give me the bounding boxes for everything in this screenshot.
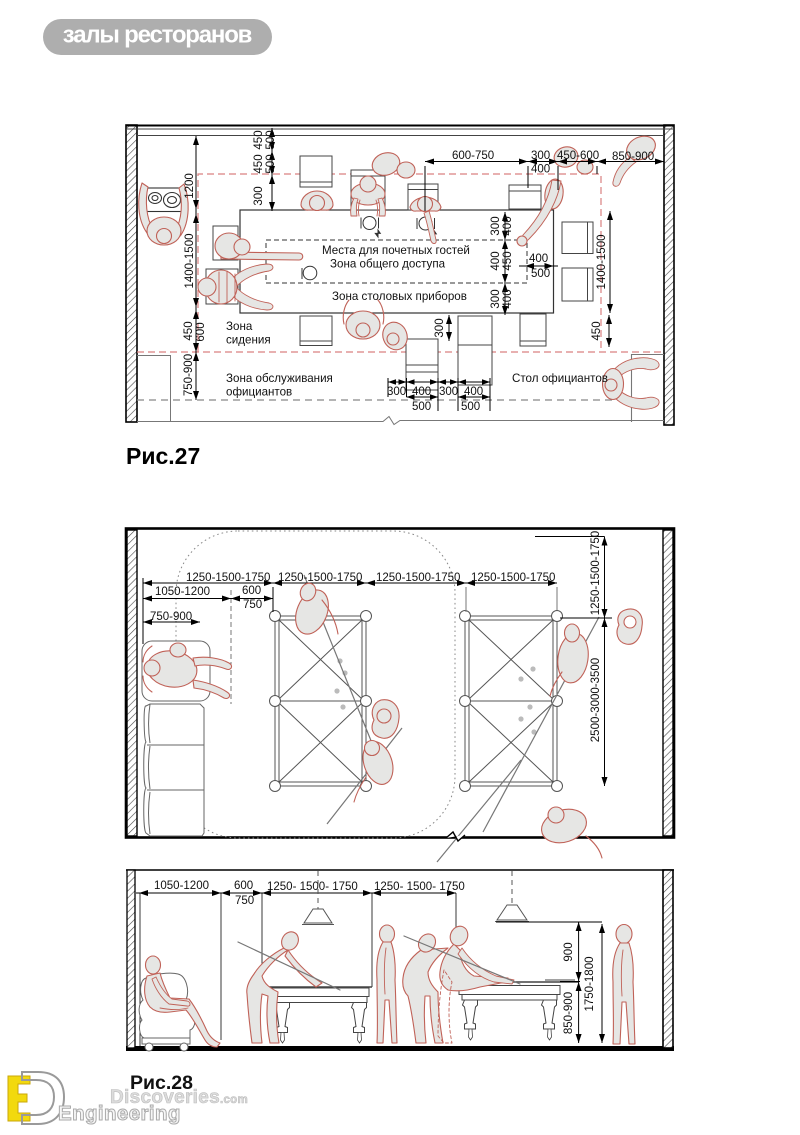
svg-text:450-600: 450-600: [557, 150, 599, 162]
svg-text:Зона обслуживания: Зона обслуживания: [226, 372, 333, 385]
svg-text:500: 500: [531, 268, 550, 280]
svg-text:750: 750: [243, 599, 262, 611]
svg-text:500: 500: [461, 401, 480, 413]
svg-text:400: 400: [502, 289, 514, 308]
svg-text:400: 400: [412, 386, 431, 398]
svg-text:400: 400: [531, 164, 550, 176]
svg-text:500: 500: [265, 130, 277, 149]
svg-text:400: 400: [464, 386, 483, 398]
svg-text:600: 600: [242, 585, 261, 597]
svg-text:залы ресторанов: залы ресторанов: [63, 22, 252, 49]
svg-text:1400-1500: 1400-1500: [596, 235, 608, 290]
svg-text:450: 450: [253, 154, 265, 173]
svg-text:300: 300: [253, 186, 265, 205]
svg-text:300: 300: [434, 318, 446, 337]
svg-text:Места для почетных гостей: Места для почетных гостей: [322, 244, 470, 257]
svg-text:500: 500: [265, 154, 277, 173]
svg-text:1400-1500: 1400-1500: [184, 234, 196, 289]
svg-text:450: 450: [502, 251, 514, 270]
svg-text:1750-1800: 1750-1800: [584, 957, 596, 1012]
svg-text:600: 600: [234, 880, 253, 892]
svg-text:Рис.27: Рис.27: [126, 443, 200, 469]
svg-text:400: 400: [490, 251, 502, 270]
svg-text:600-750: 600-750: [452, 150, 494, 162]
svg-text:1050-1200: 1050-1200: [154, 880, 209, 892]
svg-text:1050-1200: 1050-1200: [155, 586, 210, 598]
svg-text:300: 300: [387, 386, 406, 398]
svg-text:1250-1500-1750: 1250-1500-1750: [471, 572, 555, 584]
svg-text:1250-1500-1750: 1250-1500-1750: [590, 531, 602, 615]
svg-text:1250-1500-1750: 1250-1500-1750: [186, 572, 270, 584]
svg-text:300: 300: [531, 150, 550, 162]
svg-text:1250- 1500- 1750: 1250- 1500- 1750: [374, 881, 465, 893]
svg-text:1200: 1200: [184, 173, 196, 199]
svg-text:450: 450: [183, 321, 195, 340]
svg-text:850-900: 850-900: [563, 992, 575, 1034]
svg-text:450: 450: [253, 130, 265, 149]
svg-text:400: 400: [502, 216, 514, 235]
svg-text:450: 450: [591, 321, 603, 340]
svg-text:750-900: 750-900: [150, 611, 192, 623]
svg-text:600: 600: [195, 322, 207, 341]
svg-text:официантов: официантов: [226, 386, 292, 399]
svg-text:300: 300: [490, 289, 502, 308]
svg-text:сидения: сидения: [226, 334, 271, 347]
svg-text:2500-3000-3500: 2500-3000-3500: [590, 658, 602, 742]
svg-text:Зона общего доступа: Зона общего доступа: [330, 258, 446, 271]
svg-text:500: 500: [412, 401, 431, 413]
svg-text:1250-1500-1750: 1250-1500-1750: [278, 572, 362, 584]
svg-text:850-900: 850-900: [612, 151, 654, 163]
svg-text:750-900: 750-900: [183, 354, 195, 396]
svg-text:Зона столовых приборов: Зона столовых приборов: [332, 290, 467, 303]
svg-text:300: 300: [439, 386, 458, 398]
svg-text:400: 400: [529, 253, 548, 265]
svg-text:750: 750: [235, 895, 254, 907]
svg-text:Зона: Зона: [226, 320, 253, 333]
svg-text:Engineering: Engineering: [58, 1102, 181, 1125]
svg-text:900: 900: [563, 942, 575, 961]
svg-text:Стол официантов: Стол официантов: [512, 372, 608, 385]
svg-text:300: 300: [490, 216, 502, 235]
svg-text:1250- 1500- 1750: 1250- 1500- 1750: [267, 881, 358, 893]
svg-text:1250-1500-1750: 1250-1500-1750: [376, 572, 460, 584]
